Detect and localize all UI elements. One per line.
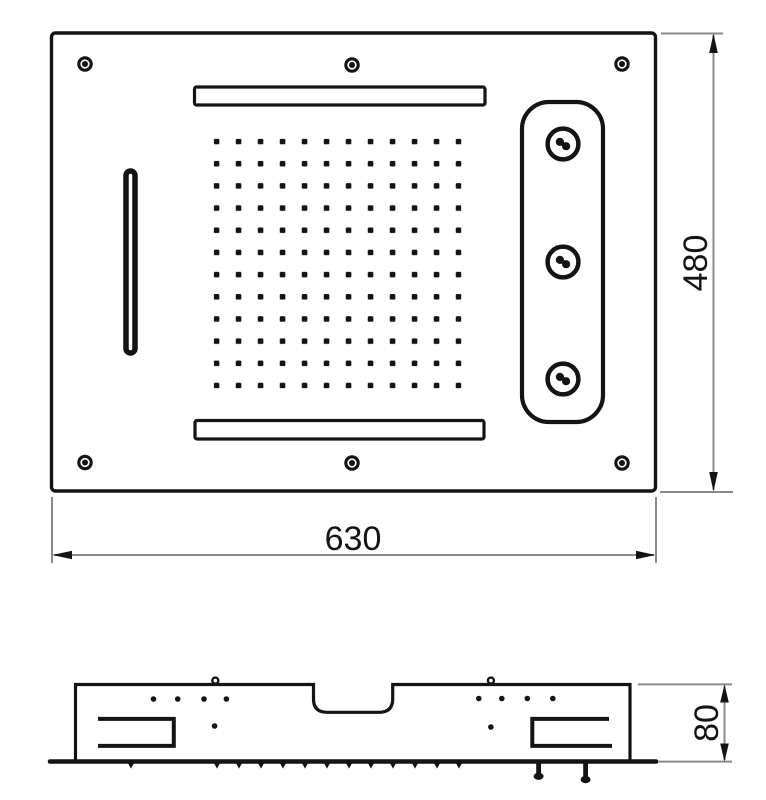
- svg-text:480: 480: [677, 235, 715, 292]
- svg-text:630: 630: [325, 520, 382, 558]
- svg-text:80: 80: [688, 704, 726, 742]
